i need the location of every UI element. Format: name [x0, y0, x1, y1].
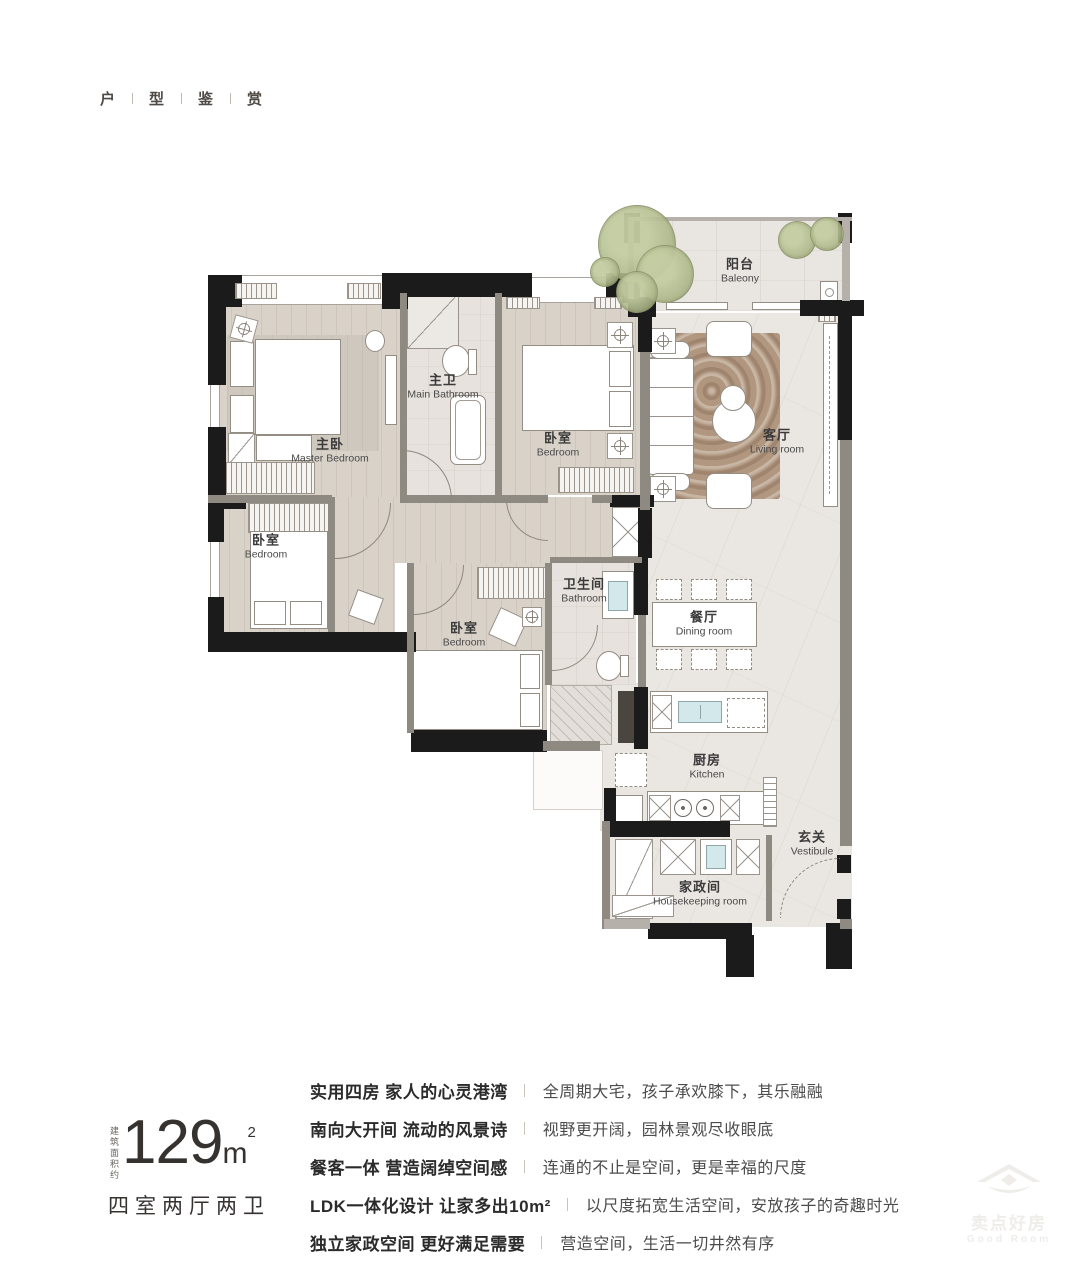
balcony-washer [820, 281, 838, 301]
cabinet [615, 795, 643, 823]
armchair [706, 473, 752, 509]
feature-row: 独立家政空间 更好满足需要 营造空间，生活一切井然有序 [310, 1230, 899, 1254]
title-separator [230, 93, 231, 104]
feature-desc: 视野更开阔，园林景观尽收眼底 [543, 1116, 774, 1140]
tree [616, 271, 658, 313]
side-table [720, 385, 746, 411]
armchair [706, 321, 752, 357]
wall-segment [826, 923, 852, 969]
wall-segment [404, 273, 502, 297]
wall-gray [545, 563, 552, 685]
laundry-sink [706, 845, 726, 869]
wall-segment [634, 687, 648, 749]
wardrobe [558, 467, 634, 493]
tree [590, 257, 620, 287]
wall-gray [495, 293, 502, 497]
dryer [736, 839, 760, 875]
wall-segment [500, 273, 532, 297]
wall-segment [604, 788, 616, 824]
room-label-bedroom2: 卧室 Bedroom [537, 430, 580, 459]
room-label-master: 主卧 Master Bedroom [291, 436, 369, 465]
washing-machine [660, 839, 696, 875]
title-separator [132, 93, 133, 104]
island-hatch [652, 695, 672, 729]
area-note: 建筑面积约 [108, 1126, 121, 1181]
title-separator [181, 93, 182, 104]
room-label-dining: 餐厅 Dining room [676, 609, 733, 638]
area-unit: m [222, 1137, 247, 1170]
pillow [254, 601, 286, 625]
feature-desc: 全周期大宅，孩子承欢膝下，其乐融融 [543, 1078, 824, 1102]
toilet-tank [468, 349, 477, 375]
bedside-table [365, 330, 385, 352]
room-label-balcony: 阳台 Baleony [721, 256, 759, 285]
pillow [520, 654, 540, 689]
wall-segment [208, 305, 226, 385]
room-label-living: 客厅 Living room [750, 427, 804, 456]
stove-burner [674, 799, 692, 817]
wall-gray [640, 352, 650, 510]
wall-segment [634, 557, 648, 615]
dining-chair [656, 579, 682, 600]
toilet-tank [620, 655, 629, 677]
feature-title: LDK一体化设计 让家多出10m² [310, 1192, 551, 1217]
wall-segment [411, 730, 547, 752]
tv-line [829, 336, 830, 494]
kitchen-sink [678, 701, 722, 723]
area-sup: 2 [247, 1124, 255, 1141]
wall-segment [208, 632, 416, 652]
wall-gray [840, 919, 852, 929]
dresser [385, 355, 397, 425]
wall-gray [592, 495, 612, 503]
counter-dashed [727, 698, 765, 728]
room-label-mainbath: 主卫 Main Bathroom [407, 372, 478, 401]
window [210, 542, 220, 597]
dining-chair [691, 649, 717, 670]
wall-gray [638, 615, 646, 687]
area-value: 129m2 [122, 1112, 256, 1174]
wall-segment [604, 821, 730, 837]
feature-desc: 以尺度拓宽生活空间，安放孩子的奇趣时光 [586, 1192, 900, 1216]
feature-separator [524, 1122, 525, 1135]
master-bed [255, 339, 341, 435]
wall-gray [550, 557, 642, 563]
window-radiator [235, 283, 277, 299]
title-char: 户 [100, 88, 116, 109]
feature-separator [524, 1160, 525, 1173]
feature-row: LDK一体化设计 让家多出10m² 以尺度拓宽生活空间，安放孩子的奇趣时光 [310, 1192, 899, 1216]
title-char: 型 [149, 88, 165, 109]
shower-floor [550, 685, 612, 745]
feature-list: 实用四房 家人的心灵港湾 全周期大宅，孩子承欢膝下，其乐融融 南向大开间 流动的… [310, 1078, 899, 1268]
wall-segment [726, 935, 754, 977]
pillow [520, 693, 540, 727]
sofa [648, 357, 694, 475]
ceiling-fan-icon [650, 328, 676, 354]
bathtub-inner [455, 400, 481, 460]
cabinet-dashed [615, 753, 647, 787]
feature-separator [567, 1198, 568, 1211]
feature-title: 南向大开间 流动的风景诗 [310, 1116, 508, 1141]
shower-screen [407, 293, 459, 349]
wall-gray [208, 495, 332, 503]
window-radiator [347, 283, 381, 299]
dining-chair [726, 649, 752, 670]
window-radiator [506, 297, 540, 309]
floor-lamp-icon [522, 607, 542, 627]
room-label-vestibule: 玄关 Vestibule [791, 829, 834, 858]
counter-hatch [649, 795, 671, 821]
feature-title: 实用四房 家人的心灵港湾 [310, 1078, 508, 1103]
feature-row: 南向大开间 流动的风景诗 视野更开阔，园林景观尽收眼底 [310, 1116, 899, 1140]
feature-row: 餐客一体 营造阔绰空间感 连通的不止是空间，更是幸福的尺度 [310, 1154, 899, 1178]
tree [810, 217, 844, 251]
wall-gray [407, 563, 414, 733]
floor-plan: 阳台 Baleony 客厅 Living room 主卧 Master Bedr… [200, 205, 868, 975]
ceiling-fan-icon [607, 433, 633, 459]
dining-chair [691, 579, 717, 600]
wall-gray [328, 497, 335, 632]
ceiling-fan-icon [607, 322, 633, 348]
watermark-zh: 卖点好房 [948, 1209, 1070, 1234]
title-char: 赏 [247, 88, 263, 109]
layout-summary: 四室两厅两卫 [108, 1190, 270, 1220]
room-label-kitchen: 厨房 Kitchen [689, 752, 724, 781]
pillow [609, 391, 631, 427]
corner-cabinet [228, 433, 255, 465]
page-title: 户 型 鉴 赏 [100, 88, 263, 109]
wall-segment [838, 305, 852, 440]
pillow [230, 395, 254, 433]
wardrobe [225, 462, 315, 494]
house-icon [967, 1160, 1051, 1204]
feature-desc: 连通的不止是空间，更是幸福的尺度 [543, 1154, 807, 1178]
watermark-logo: 卖点好房 Good Room [948, 1160, 1070, 1245]
bathtub [450, 395, 486, 465]
pillow [290, 601, 322, 625]
balcony-sliding-door [666, 302, 728, 310]
title-char: 鉴 [198, 88, 214, 109]
wardrobe [248, 503, 330, 533]
dining-chair [656, 649, 682, 670]
washer-door [825, 288, 834, 297]
toilet [596, 651, 622, 681]
watermark-en: Good Room [948, 1234, 1070, 1245]
feature-title: 独立家政空间 更好满足需要 [310, 1230, 525, 1255]
feature-title: 餐客一体 营造阔绰空间感 [310, 1154, 508, 1179]
counter-hatch [720, 795, 740, 821]
wall-segment [208, 427, 226, 497]
pillow [230, 341, 254, 387]
wall-gray [766, 835, 772, 921]
wash-basin [608, 581, 628, 611]
feature-desc: 营造空间，生活一切井然有序 [560, 1230, 775, 1254]
feature-row: 实用四房 家人的心灵港湾 全周期大宅，孩子承欢膝下，其乐融融 [310, 1078, 899, 1102]
area-number: 129 [122, 1108, 222, 1177]
window [210, 385, 220, 427]
exterior-ledge [533, 750, 603, 810]
threshold [763, 777, 777, 827]
dining-chair [726, 579, 752, 600]
wall-segment [638, 508, 652, 558]
wall-gray [543, 741, 600, 751]
feature-separator [524, 1084, 525, 1097]
wall-gray [840, 440, 852, 846]
stove-burner [696, 799, 714, 817]
room-label-bathroom: 卫生间 Bathroom [561, 576, 607, 605]
room-label-bedroom3: 卧室 Bedroom [245, 532, 288, 561]
room-label-housekeeping: 家政间 Housekeeping room [653, 879, 747, 908]
wardrobe [477, 567, 547, 599]
wall-gray [602, 821, 610, 929]
pillow [609, 351, 631, 387]
room-label-bedroom4: 卧室 Bedroom [443, 620, 486, 649]
wall-segment [800, 300, 864, 316]
wall-light [604, 919, 650, 929]
feature-separator [541, 1236, 542, 1249]
tv-console [823, 323, 838, 507]
fridge [618, 691, 634, 743]
